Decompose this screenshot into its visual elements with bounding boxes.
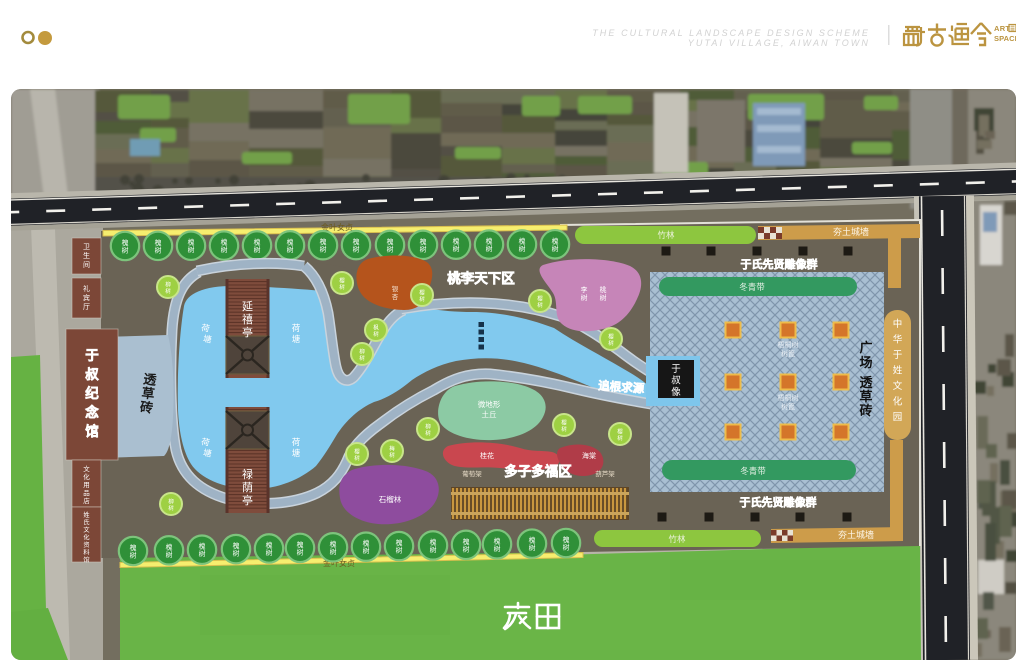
- svg-text:冬青带: 冬青带: [740, 466, 766, 476]
- svg-text:树: 树: [199, 549, 206, 558]
- svg-text:砖: 砖: [859, 403, 872, 418]
- svg-text:槐: 槐: [254, 237, 261, 246]
- svg-text:园: 园: [893, 412, 903, 423]
- svg-text:槐: 槐: [387, 237, 394, 246]
- svg-text:槐: 槐: [233, 541, 240, 550]
- svg-text:槐: 槐: [353, 237, 360, 246]
- svg-text:李: 李: [581, 285, 588, 294]
- svg-text:梅: 梅: [389, 445, 395, 453]
- svg-text:树: 树: [339, 283, 345, 291]
- svg-text:海棠: 海棠: [582, 451, 596, 460]
- svg-text:槐: 槐: [552, 236, 559, 245]
- svg-text:草: 草: [859, 389, 872, 404]
- svg-text:银: 银: [392, 284, 399, 293]
- svg-text:槐: 槐: [529, 536, 536, 545]
- svg-text:化: 化: [83, 472, 90, 481]
- svg-text:禄: 禄: [242, 467, 253, 481]
- svg-text:THE CULTURAL LANDSCAPE DESIGN: THE CULTURAL LANDSCAPE DESIGN SCHEME: [592, 28, 870, 38]
- svg-text:槐: 槐: [266, 540, 273, 549]
- svg-text:夯土城墙: 夯土城墙: [838, 529, 874, 540]
- svg-text:广: 广: [859, 340, 872, 355]
- svg-text:亭: 亭: [242, 325, 253, 339]
- svg-text:ART: ART: [994, 24, 1010, 33]
- svg-text:樱: 樱: [561, 419, 567, 427]
- svg-text:树: 树: [581, 293, 588, 302]
- svg-text:树: 树: [617, 434, 623, 442]
- svg-text:砖: 砖: [139, 399, 154, 415]
- svg-text:树: 树: [320, 245, 327, 254]
- svg-text:树: 树: [561, 425, 567, 433]
- svg-text:多子多福区: 多子多福区: [504, 463, 572, 479]
- svg-text:树: 树: [463, 544, 470, 553]
- svg-text:树: 树: [353, 245, 360, 254]
- svg-text:槐: 槐: [287, 237, 294, 246]
- svg-text:中: 中: [893, 318, 903, 330]
- svg-text:树篦: 树篦: [781, 349, 795, 358]
- svg-text:槐: 槐: [494, 536, 501, 545]
- svg-text:树: 树: [168, 504, 174, 512]
- svg-text:树: 树: [486, 244, 493, 253]
- svg-text:樱: 樱: [537, 295, 543, 303]
- svg-text:树: 树: [494, 544, 501, 553]
- svg-text:竹林: 竹林: [657, 230, 675, 240]
- svg-text:枫: 枫: [373, 324, 379, 332]
- svg-text:纪: 纪: [85, 385, 99, 401]
- svg-text:树: 树: [330, 547, 337, 556]
- svg-text:冬青带: 冬青带: [739, 282, 765, 292]
- svg-text:树: 树: [373, 330, 379, 338]
- svg-text:料: 料: [83, 549, 89, 557]
- svg-text:文: 文: [83, 526, 89, 534]
- svg-text:于: 于: [85, 348, 99, 363]
- svg-text:树篦: 树篦: [781, 402, 795, 411]
- svg-text:树: 树: [519, 244, 526, 253]
- svg-text:树: 树: [529, 543, 536, 552]
- svg-text:槐: 槐: [486, 237, 493, 246]
- svg-text:槐: 槐: [453, 237, 460, 246]
- svg-text:厅: 厅: [83, 303, 90, 311]
- svg-text:槐: 槐: [363, 539, 370, 548]
- svg-text:树: 树: [354, 454, 360, 462]
- svg-text:树: 树: [297, 547, 304, 556]
- svg-text:卫: 卫: [83, 243, 90, 251]
- svg-text:竹林: 竹林: [668, 534, 686, 544]
- svg-text:间: 间: [83, 261, 90, 269]
- svg-text:槐: 槐: [519, 236, 526, 245]
- svg-text:樱: 樱: [354, 448, 360, 456]
- svg-text:树: 树: [537, 301, 543, 309]
- svg-text:化: 化: [83, 534, 89, 542]
- svg-text:荫: 荫: [242, 481, 253, 494]
- svg-text:念: 念: [84, 404, 99, 420]
- svg-text:桃李天下区: 桃李天下区: [447, 270, 515, 286]
- svg-text:馆: 馆: [83, 556, 89, 564]
- svg-text:柳: 柳: [425, 423, 431, 431]
- svg-text:荷: 荷: [292, 437, 301, 447]
- svg-text:姓: 姓: [893, 365, 903, 377]
- svg-text:槐: 槐: [320, 237, 327, 246]
- svg-text:樱: 樱: [419, 289, 425, 297]
- svg-text:梧桐树: 梧桐树: [778, 393, 799, 402]
- svg-text:槐: 槐: [122, 238, 129, 247]
- svg-text:夯土城墙: 夯土城墙: [833, 226, 869, 237]
- svg-text:槐: 槐: [430, 537, 437, 546]
- svg-text:透: 透: [859, 375, 872, 390]
- svg-text:树: 树: [122, 246, 129, 255]
- svg-text:树: 树: [363, 546, 370, 555]
- svg-text:叔: 叔: [85, 366, 99, 382]
- svg-text:像: 像: [671, 386, 681, 398]
- svg-text:品: 品: [83, 489, 90, 497]
- svg-text:葡萄架: 葡萄架: [462, 469, 482, 478]
- svg-text:树: 树: [165, 287, 171, 295]
- svg-text:石榴林: 石榴林: [379, 494, 402, 504]
- svg-text:樱: 樱: [608, 333, 614, 341]
- svg-text:于: 于: [671, 364, 681, 375]
- svg-text:生: 生: [83, 251, 90, 260]
- svg-text:槐: 槐: [463, 537, 470, 546]
- svg-text:葫芦架: 葫芦架: [595, 469, 615, 478]
- svg-text:店: 店: [83, 496, 90, 505]
- svg-text:树: 树: [419, 295, 425, 303]
- svg-text:树: 树: [221, 245, 228, 254]
- svg-text:树: 树: [155, 245, 162, 254]
- svg-text:树: 树: [188, 245, 195, 254]
- svg-text:桂花: 桂花: [480, 451, 494, 460]
- svg-text:树: 树: [166, 550, 173, 559]
- svg-text:荷: 荷: [292, 323, 301, 333]
- svg-text:宾: 宾: [83, 293, 90, 302]
- svg-text:槐: 槐: [420, 237, 427, 246]
- svg-text:树: 树: [608, 339, 614, 347]
- svg-text:塘: 塘: [292, 448, 301, 458]
- svg-text:槐: 槐: [166, 542, 173, 551]
- svg-text:树: 树: [396, 546, 403, 555]
- svg-text:槐: 槐: [188, 238, 195, 247]
- svg-text:馆: 馆: [85, 423, 99, 439]
- svg-text:树: 树: [563, 542, 570, 551]
- svg-text:槐: 槐: [297, 540, 304, 549]
- svg-text:槐: 槐: [155, 238, 162, 247]
- svg-text:文: 文: [893, 380, 903, 392]
- svg-text:SPACE: SPACE: [994, 34, 1016, 43]
- svg-text:禧: 禧: [242, 313, 253, 326]
- svg-text:柳: 柳: [168, 498, 174, 506]
- svg-text:于氏先贤雕像群: 于氏先贤雕像群: [741, 257, 818, 271]
- svg-text:于氏先贤雕像群: 于氏先贤雕像群: [740, 495, 817, 509]
- svg-text:树: 树: [453, 244, 460, 253]
- svg-text:樱: 樱: [617, 428, 623, 436]
- svg-text:杏: 杏: [392, 292, 399, 301]
- svg-text:桃: 桃: [600, 285, 607, 294]
- svg-text:槐: 槐: [563, 535, 570, 544]
- svg-text:树: 树: [425, 429, 431, 437]
- svg-text:文: 文: [83, 464, 90, 473]
- svg-text:树: 树: [359, 354, 365, 362]
- svg-text:用: 用: [83, 481, 90, 489]
- svg-text:槐: 槐: [130, 543, 137, 552]
- svg-text:槐: 槐: [330, 539, 337, 548]
- svg-text:礼: 礼: [83, 284, 90, 293]
- svg-text:亭: 亭: [242, 493, 253, 507]
- svg-text:树: 树: [430, 545, 437, 554]
- svg-text:氏: 氏: [83, 519, 89, 527]
- svg-text:槐: 槐: [396, 538, 403, 547]
- svg-text:化: 化: [893, 396, 903, 408]
- svg-text:延: 延: [242, 300, 253, 313]
- svg-text:场: 场: [859, 355, 872, 370]
- svg-text:梧桐树: 梧桐树: [778, 340, 799, 349]
- svg-text:树: 树: [389, 451, 395, 459]
- svg-text:树: 树: [130, 551, 137, 560]
- svg-text:槐: 槐: [221, 238, 228, 247]
- svg-text:塘: 塘: [292, 334, 301, 344]
- svg-text:树: 树: [254, 245, 261, 254]
- svg-text:土丘: 土丘: [482, 409, 497, 419]
- svg-text:叔: 叔: [671, 375, 681, 387]
- svg-text:樱: 樱: [339, 277, 345, 285]
- svg-text:YUTAI VILLAGE, AIWAN TOWN: YUTAI VILLAGE, AIWAN TOWN: [688, 38, 870, 48]
- svg-text:树: 树: [600, 293, 607, 302]
- svg-text:树: 树: [387, 244, 394, 253]
- svg-text:树: 树: [287, 245, 294, 254]
- svg-text:华: 华: [893, 334, 903, 346]
- svg-text:树: 树: [552, 244, 559, 253]
- svg-text:姓: 姓: [83, 511, 89, 519]
- svg-text:柳: 柳: [165, 281, 171, 289]
- svg-text:树: 树: [266, 548, 273, 557]
- svg-text:槐: 槐: [199, 542, 206, 551]
- svg-text:于: 于: [893, 350, 903, 361]
- svg-text:树: 树: [420, 244, 427, 253]
- svg-text:柳: 柳: [359, 348, 365, 356]
- svg-text:资: 资: [83, 541, 89, 549]
- svg-text:树: 树: [233, 549, 240, 558]
- svg-text:微地形: 微地形: [478, 399, 501, 409]
